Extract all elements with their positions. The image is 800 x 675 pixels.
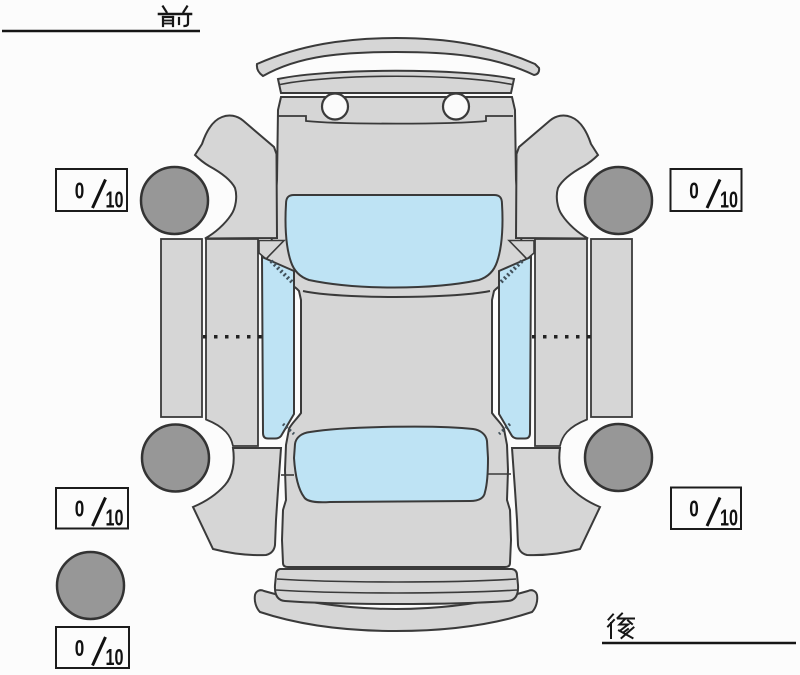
svg-text:0: 0 [75, 178, 85, 204]
svg-text:0: 0 [75, 635, 85, 661]
svg-text:0: 0 [75, 496, 85, 522]
svg-text:10: 10 [720, 505, 738, 531]
svg-text:10: 10 [106, 187, 124, 213]
svg-text:10: 10 [720, 187, 738, 213]
svg-text:0: 0 [689, 178, 699, 204]
svg-text:0: 0 [689, 496, 699, 522]
svg-text:10: 10 [106, 644, 124, 670]
svg-text:10: 10 [106, 505, 124, 531]
